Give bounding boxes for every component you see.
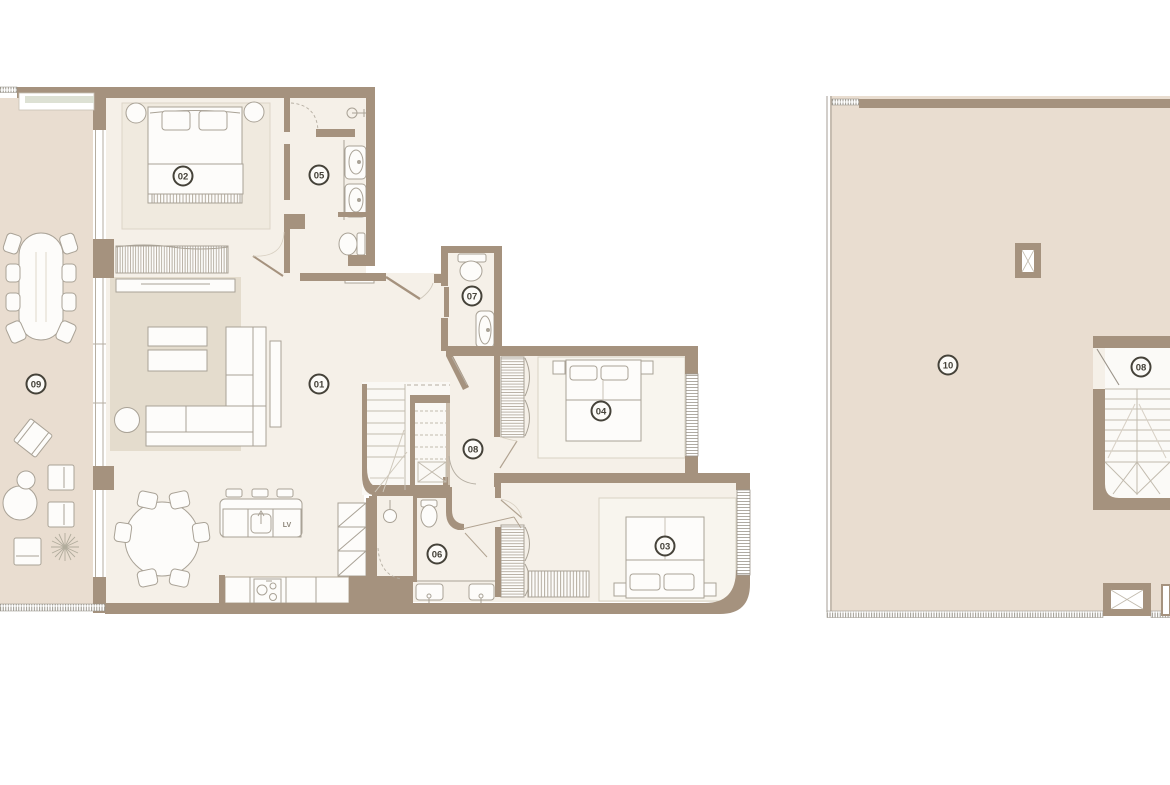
svg-text:07: 07 (467, 292, 478, 303)
svg-text:LV: LV (283, 522, 292, 529)
svg-text:06: 06 (432, 550, 443, 561)
svg-text:01: 01 (314, 380, 325, 391)
svg-text:03: 03 (660, 542, 671, 553)
svg-text:04: 04 (596, 407, 607, 418)
svg-text:09: 09 (31, 380, 42, 391)
svg-text:08: 08 (468, 445, 479, 456)
svg-text:05: 05 (314, 171, 325, 182)
svg-text:08: 08 (1136, 363, 1147, 374)
svg-text:02: 02 (178, 172, 189, 183)
svg-text:10: 10 (943, 361, 954, 372)
